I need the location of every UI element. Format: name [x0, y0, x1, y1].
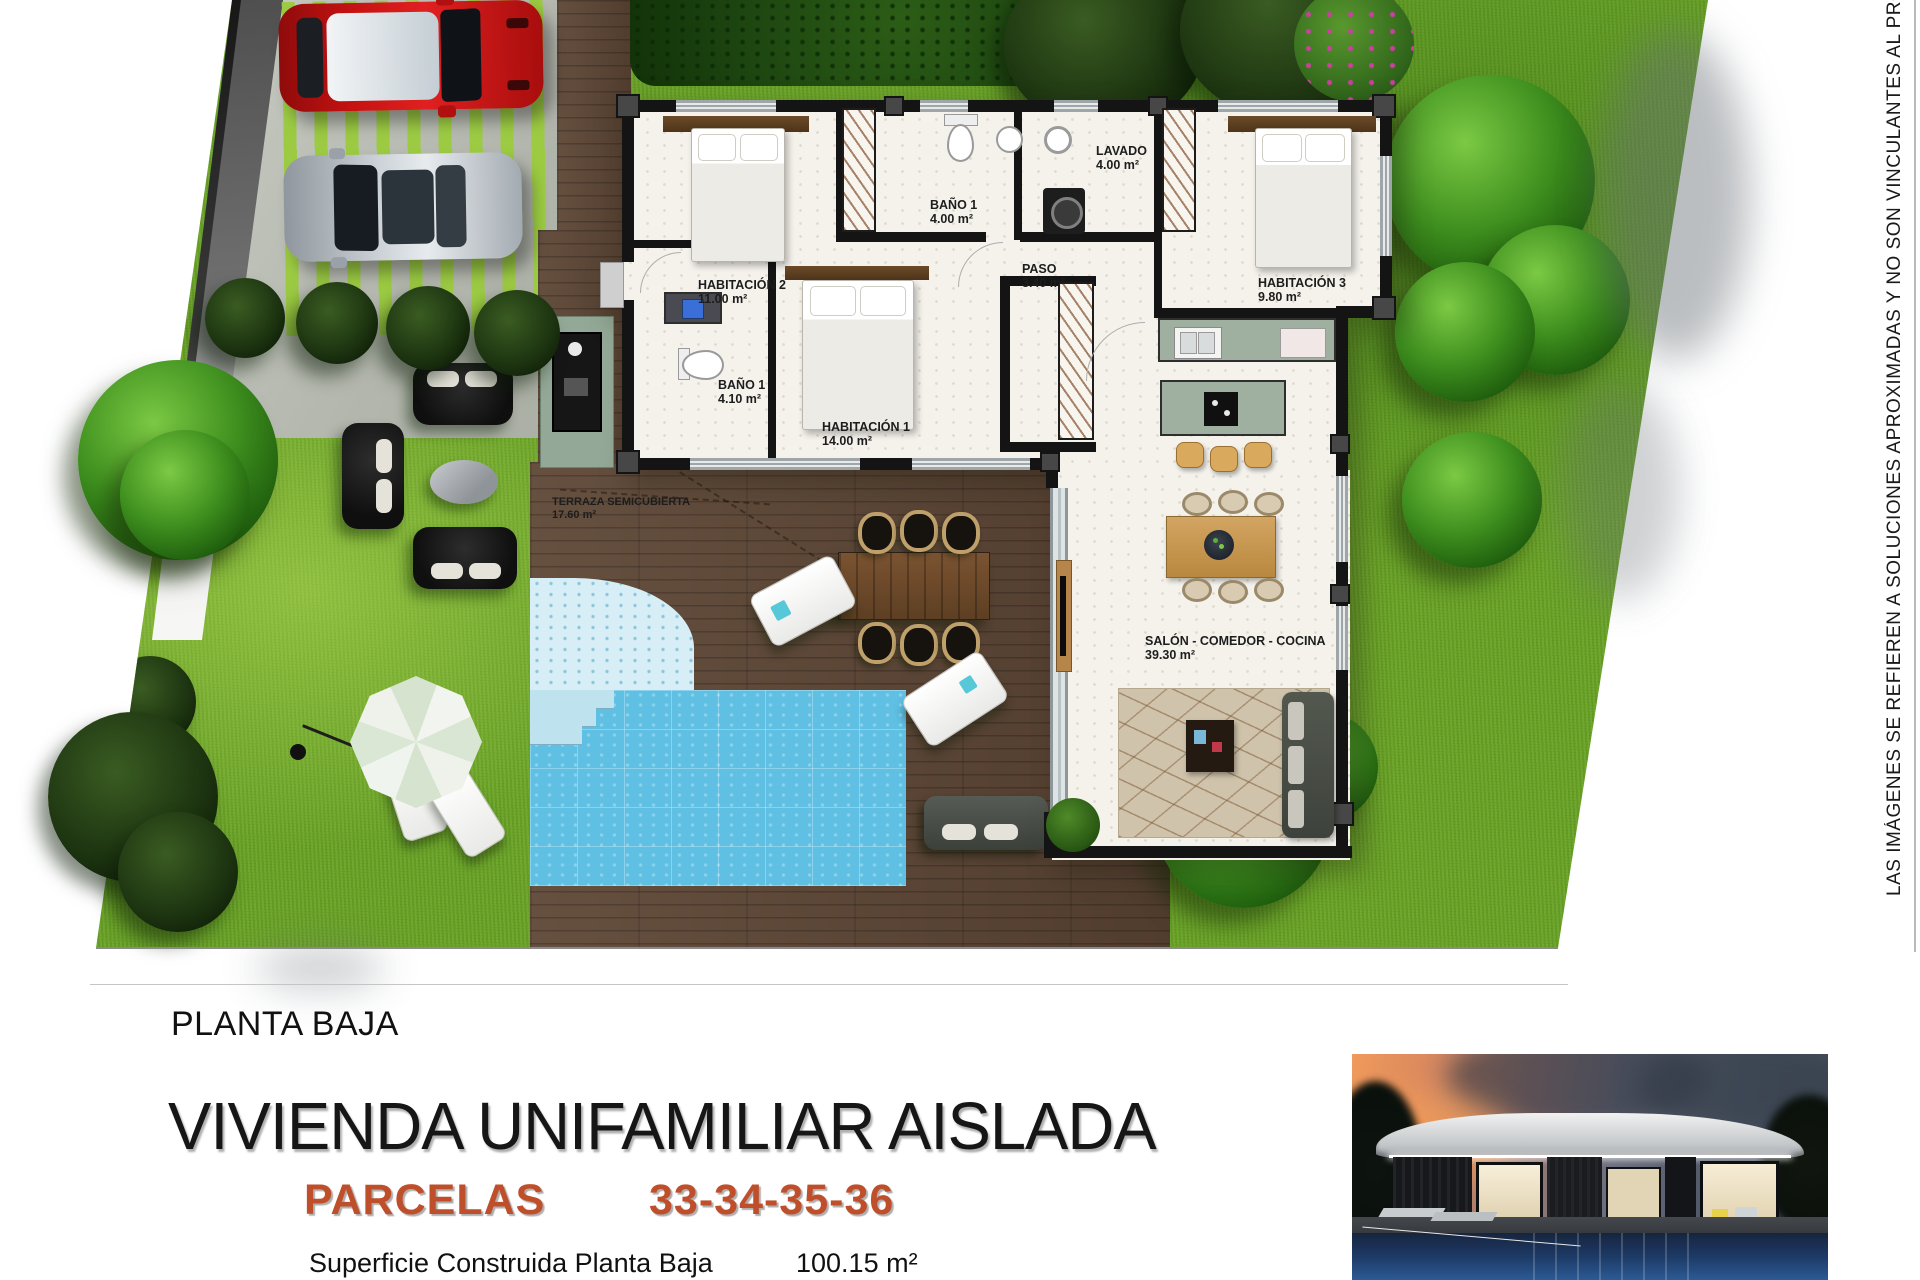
pillow	[698, 134, 737, 161]
page-title: VIVIENDA UNIFAMILIAR AISLADA	[168, 1088, 1156, 1165]
room-area: 39.30 m²	[1145, 648, 1326, 662]
counter-module	[1280, 328, 1326, 358]
room-label-salon: SALÓN - COMEDOR - COCINA 39.30 m²	[1145, 634, 1326, 663]
villa-render-photo	[1352, 1054, 1828, 1280]
pillow	[810, 286, 856, 316]
room-label-hab3: HABITACIÓN 3 9.80 m²	[1258, 276, 1346, 305]
sink-bowl	[1198, 332, 1215, 354]
wall-hall-closet-bottom	[1000, 442, 1096, 452]
dining-chair	[1254, 492, 1284, 516]
centerpiece-bowl	[1204, 530, 1234, 560]
plant-sprig	[1213, 538, 1218, 543]
plot-boundary-line	[96, 947, 1558, 949]
sofa-cushion	[1288, 702, 1304, 740]
wall-right-salon-3	[1336, 670, 1348, 858]
washer-drum	[1051, 197, 1083, 229]
bed-hab1	[802, 280, 914, 430]
dining-chair	[1182, 492, 1212, 516]
room-area: 3.40 m²	[1022, 276, 1065, 290]
window-lavado	[1054, 100, 1098, 112]
wall-bath1b-hab1	[768, 240, 776, 458]
room-area: 11.00 m²	[698, 292, 786, 306]
surface-value: 100.15 m²	[796, 1248, 918, 1279]
kitchen-counter	[1158, 318, 1336, 362]
toilet-icon	[682, 350, 724, 380]
hob-icon	[1204, 392, 1238, 426]
bed-hab2	[691, 128, 785, 262]
tv-icon	[1060, 576, 1066, 656]
pillar	[1330, 584, 1350, 604]
window-terrace-2	[912, 458, 1030, 470]
pool-lounger	[1430, 1212, 1497, 1221]
pillar	[1330, 434, 1350, 454]
pillow	[740, 134, 779, 161]
room-name: BAÑO 1	[930, 198, 977, 212]
dining-chair	[1254, 578, 1284, 602]
laundry-sink-icon	[1044, 126, 1072, 154]
entry-step	[600, 262, 624, 308]
dining-chair	[1218, 580, 1248, 604]
room-name: SALÓN - COMEDOR - COCINA	[1145, 634, 1326, 648]
wall-bath-lavado	[1014, 100, 1022, 240]
hob-burner	[1212, 400, 1218, 406]
potted-plant	[1046, 798, 1100, 852]
room-label-hab1: HABITACIÓN 1 14.00 m²	[822, 420, 910, 449]
curved-roof	[1376, 1113, 1804, 1159]
pillar	[1040, 452, 1060, 472]
room-name: BAÑO 1	[718, 378, 765, 392]
wall-corridor-2	[1020, 232, 1162, 242]
window-hab3-side	[1380, 156, 1392, 256]
room-label-paso: PASO 3.40 m²	[1022, 262, 1065, 291]
wall-left-upper	[622, 100, 634, 262]
window-salon-right-2	[1336, 606, 1348, 670]
room-label-hab2: HABITACIÓN 2 11.00 m²	[698, 278, 786, 307]
photo-pool	[1352, 1233, 1828, 1280]
room-label-bano1-top: BAÑO 1 4.00 m²	[930, 198, 977, 227]
wardrobe-hab3	[1162, 108, 1196, 232]
pillar	[884, 96, 904, 116]
room-name: LAVADO	[1096, 144, 1147, 158]
sofa	[1282, 692, 1334, 838]
sink-bowl	[1180, 332, 1197, 354]
room-area: 14.00 m²	[822, 434, 910, 448]
room-name: HABITACIÓN 1	[822, 420, 910, 434]
room-name: HABITACIÓN 2	[698, 278, 786, 292]
room-area: 4.00 m²	[1096, 158, 1147, 172]
pillar	[1372, 94, 1396, 118]
dining-chair	[1182, 578, 1212, 602]
sofa-cushion	[1288, 746, 1304, 784]
pillar	[1372, 296, 1396, 320]
window-hab2	[676, 100, 776, 112]
dining-chair	[1218, 490, 1248, 514]
room-area: 4.00 m²	[930, 212, 977, 226]
bar-stool	[1244, 442, 1272, 468]
window-terrace-1	[690, 458, 860, 470]
washing-machine-icon	[1043, 188, 1085, 234]
wardrobe-hab2	[842, 108, 876, 232]
plot-boundary-line-2	[90, 984, 1568, 985]
plant-sprig	[1219, 544, 1224, 549]
room-label-bano1b: BAÑO 1 4.10 m²	[718, 378, 765, 407]
pillow	[1305, 134, 1345, 162]
pillar	[616, 450, 640, 474]
wall-salon-bottom	[1044, 846, 1352, 858]
pillow	[860, 286, 906, 316]
plan-level-label: PLANTA BAJA	[171, 1005, 399, 1044]
page-edge-line	[1914, 0, 1916, 952]
pillar	[616, 94, 640, 118]
bar-stool	[1176, 442, 1204, 468]
window-salon-right-1	[1336, 476, 1348, 562]
parcels-label: PARCELAS	[304, 1176, 545, 1225]
pool-reflection	[1533, 1233, 1695, 1280]
wall-hall-closet-left	[1000, 276, 1010, 452]
bed-hab3	[1255, 128, 1352, 268]
tree-shadow-on-margin	[255, 948, 385, 988]
room-name: PASO	[1022, 262, 1065, 276]
bar-stool	[1210, 446, 1238, 472]
brochure-page: TERRAZA SEMICUBIERTA 17.60 m²	[0, 0, 1920, 1280]
hob-burner	[1224, 410, 1230, 416]
house: HABITACIÓN 2 11.00 m² BAÑO 1 4.00 m² LAV…	[0, 0, 1920, 950]
room-area: 9.80 m²	[1258, 290, 1346, 304]
sink-icon	[996, 126, 1023, 153]
room-name: HABITACIÓN 3	[1258, 276, 1346, 290]
surface-label: Superficie Construida Planta Baja	[309, 1248, 713, 1279]
wall-corridor-1	[836, 232, 986, 242]
kitchen-island	[1160, 380, 1286, 436]
toilet-icon	[947, 124, 974, 162]
sofa-cushion	[1288, 790, 1304, 828]
room-label-lavado: LAVADO 4.00 m²	[1096, 144, 1147, 173]
pillow	[1262, 134, 1302, 162]
coffee-table	[1186, 720, 1234, 772]
wall-hab3-bottom	[1154, 308, 1380, 318]
parcels-numbers: 33-34-35-36	[649, 1176, 894, 1225]
magazine	[1194, 730, 1206, 744]
window-hab3	[1218, 100, 1338, 112]
window-bath	[920, 100, 968, 112]
headboard-hab1	[785, 266, 929, 280]
wall-left-lower	[622, 300, 634, 470]
wall-lavado-hab3	[1154, 100, 1162, 318]
decor-item	[1212, 742, 1222, 752]
room-area: 4.10 m²	[718, 392, 765, 406]
disclaimer-vertical-text: LAS IMÁGENES SE REFIEREN A SOLUCIONES AP…	[1884, 0, 1906, 896]
